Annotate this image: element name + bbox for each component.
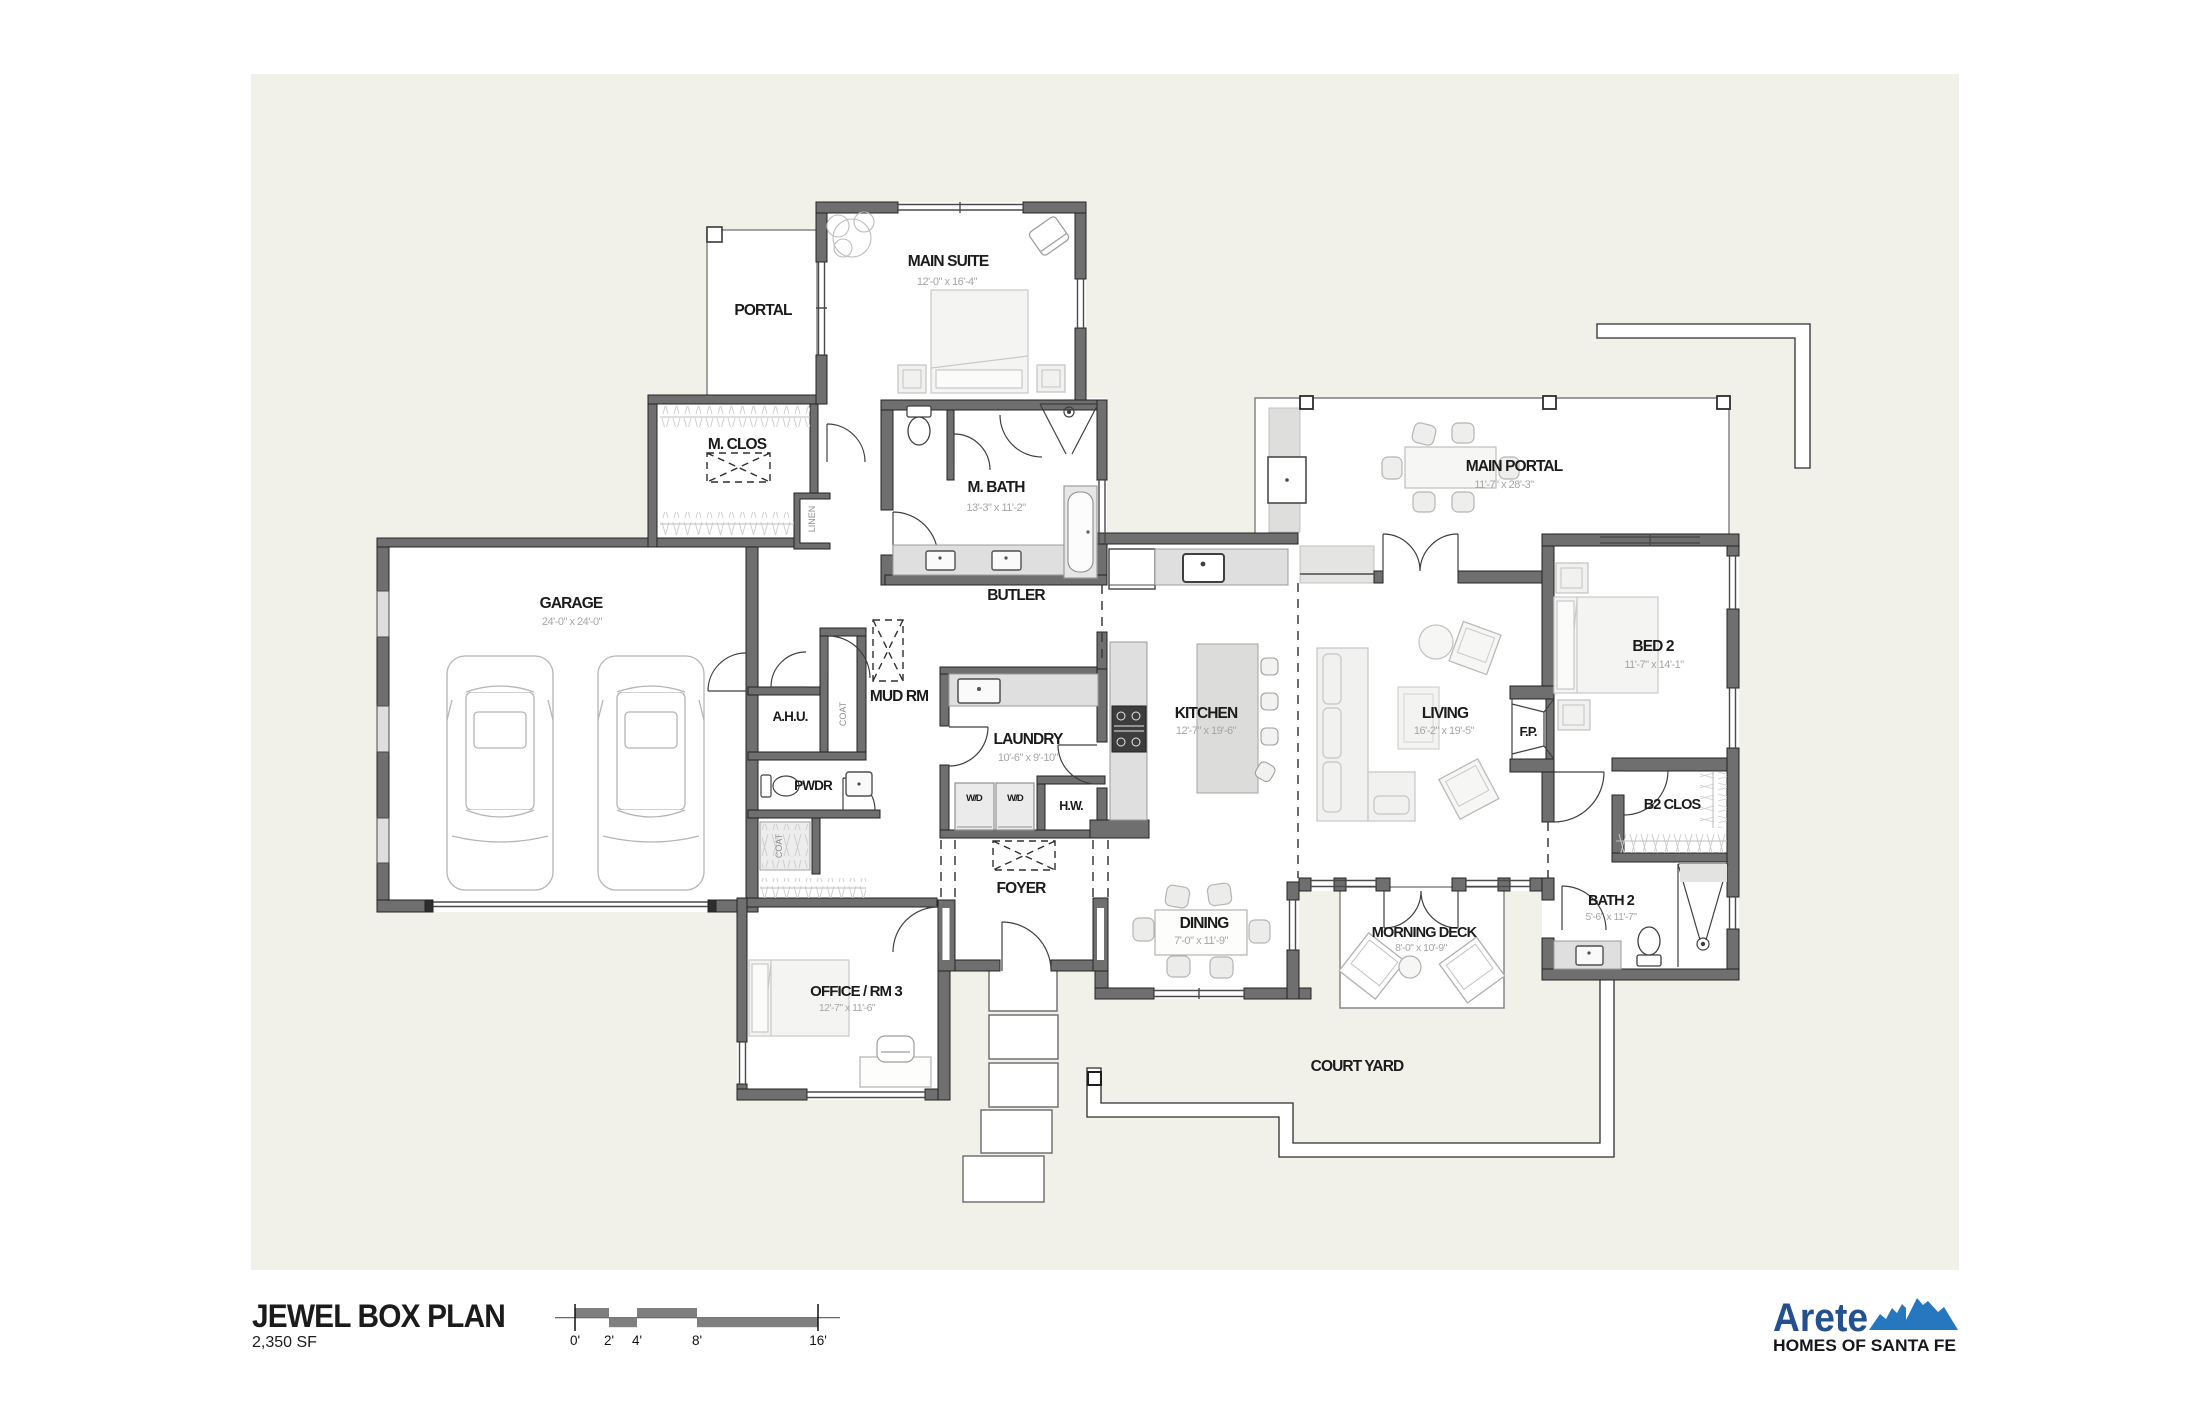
svg-text:12'-7" x 11'-6": 12'-7" x 11'-6" <box>819 1002 876 1014</box>
svg-text:B2 CLOS: B2 CLOS <box>1644 797 1702 813</box>
svg-text:W/D: W/D <box>966 793 983 804</box>
svg-text:LINEN: LINEN <box>807 506 817 533</box>
svg-text:F.P.: F.P. <box>1519 724 1536 739</box>
svg-text:12'-7" x 19'-6": 12'-7" x 19'-6" <box>1176 725 1237 737</box>
svg-text:COURT YARD: COURT YARD <box>1311 1058 1404 1075</box>
svg-text:HOMES OF SANTA FE: HOMES OF SANTA FE <box>1773 1336 1956 1355</box>
svg-text:5'-6" x 11'-7": 5'-6" x 11'-7" <box>1586 911 1638 923</box>
svg-text:BED 2: BED 2 <box>1632 638 1673 655</box>
svg-text:11'-7" x 28'-3": 11'-7" x 28'-3" <box>1474 479 1534 491</box>
svg-text:COAT: COAT <box>774 833 784 858</box>
svg-text:DINING: DINING <box>1180 915 1230 932</box>
svg-text:COAT: COAT <box>838 701 848 726</box>
svg-text:OFFICE / RM 3: OFFICE / RM 3 <box>810 983 902 1000</box>
svg-text:H.W.: H.W. <box>1059 799 1083 813</box>
svg-text:W/D: W/D <box>1007 793 1024 804</box>
svg-text:10'-6" x 9'-10": 10'-6" x 9'-10" <box>998 752 1059 764</box>
svg-text:16'-2" x 19'-5": 16'-2" x 19'-5" <box>1414 725 1475 737</box>
svg-text:MAIN PORTAL: MAIN PORTAL <box>1466 458 1563 475</box>
svg-text:BATH 2: BATH 2 <box>1588 893 1635 909</box>
svg-text:12'-0" x 16'-4": 12'-0" x 16'-4" <box>917 276 978 288</box>
svg-text:BUTLER: BUTLER <box>987 587 1045 604</box>
svg-text:MAIN SUITE: MAIN SUITE <box>908 253 989 270</box>
svg-text:7'-0" x 11'-9": 7'-0" x 11'-9" <box>1174 935 1228 947</box>
svg-text:PORTAL: PORTAL <box>734 302 792 319</box>
svg-text:M. CLOS: M. CLOS <box>708 436 767 453</box>
svg-text:A.H.U.: A.H.U. <box>772 709 807 724</box>
svg-text:4': 4' <box>632 1333 642 1348</box>
svg-text:KITCHEN: KITCHEN <box>1175 705 1238 722</box>
svg-text:JEWEL BOX PLAN: JEWEL BOX PLAN <box>252 1298 505 1334</box>
svg-text:LAUNDRY: LAUNDRY <box>994 731 1064 748</box>
svg-text:2': 2' <box>604 1333 614 1348</box>
svg-text:13'-3" x 11'-2": 13'-3" x 11'-2" <box>966 502 1026 514</box>
svg-text:MUD RM: MUD RM <box>870 688 928 705</box>
svg-text:MORNING DECK: MORNING DECK <box>1372 925 1478 941</box>
svg-text:8'-0" x 10'-9": 8'-0" x 10'-9" <box>1395 942 1448 954</box>
svg-text:11'-7" x 14'-1": 11'-7" x 14'-1" <box>1624 659 1684 671</box>
svg-text:0': 0' <box>570 1333 580 1348</box>
svg-text:16': 16' <box>809 1333 827 1348</box>
svg-text:PWDR: PWDR <box>794 778 833 793</box>
svg-text:24'-0" x 24'-0": 24'-0" x 24'-0" <box>542 616 603 628</box>
svg-text:FOYER: FOYER <box>997 880 1047 897</box>
svg-text:M. BATH: M. BATH <box>967 479 1025 496</box>
svg-text:2,350 SF: 2,350 SF <box>252 1334 317 1351</box>
svg-text:8': 8' <box>692 1333 702 1348</box>
svg-text:Arete: Arete <box>1773 1296 1868 1340</box>
svg-text:GARAGE: GARAGE <box>540 595 603 612</box>
svg-text:LIVING: LIVING <box>1422 705 1469 722</box>
